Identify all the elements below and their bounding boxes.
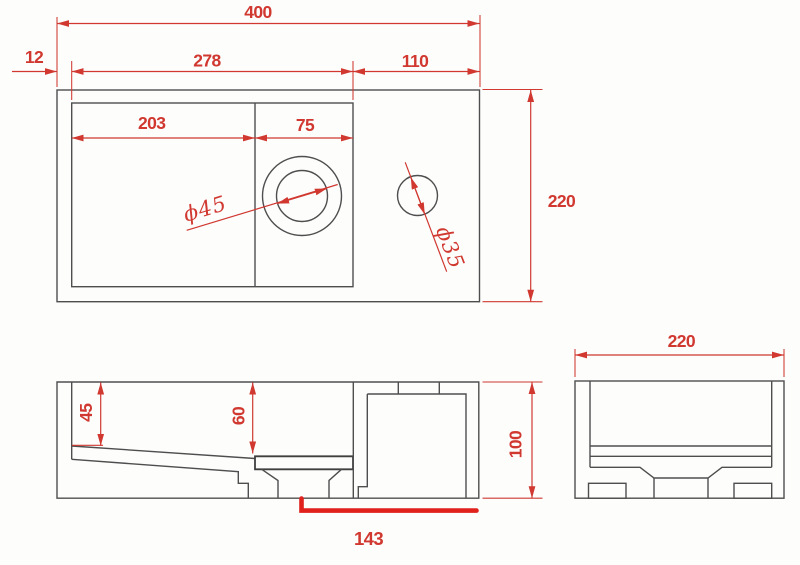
dim-label-drain-offset: 143 <box>354 528 383 549</box>
dim-label-basin-section: 203 <box>138 113 166 133</box>
top-view-dimensions: 400 12 278 110 203 75 220 ϕ45 ϕ35 <box>12 2 576 302</box>
dim-label-drain-section: 75 <box>296 115 315 135</box>
side-underside-drain-dip <box>590 467 772 478</box>
drain-pipe-right <box>329 469 342 498</box>
mounting-slot-right <box>734 483 772 498</box>
dim-label-deck-width: 110 <box>402 51 429 71</box>
mounting-slot-left <box>589 483 627 498</box>
side-drain-pipe <box>654 478 708 498</box>
drain-flange <box>255 456 353 469</box>
dim-label-drain-diameter: ϕ45 <box>181 191 230 227</box>
front-view-outer-outline <box>57 382 479 498</box>
top-view-outer-outline <box>57 90 480 302</box>
front-view-dimensions: 45 60 100 143 <box>72 382 543 549</box>
faucet-hole-section-lines <box>398 382 439 394</box>
dim-label-inner-width: 278 <box>193 51 221 71</box>
drain-offset-highlight-line <box>302 499 477 511</box>
sink-dimension-drawing: 400 12 278 110 203 75 220 ϕ45 ϕ35 45 60 … <box>0 0 800 565</box>
dim-label-left-rim: 12 <box>25 47 44 67</box>
faucet-diameter-arrows <box>411 177 425 214</box>
underside-slope-step <box>72 459 249 498</box>
technical-drawing-sheet: 400 12 278 110 203 75 220 ϕ45 ϕ35 45 60 … <box>0 0 800 565</box>
top-view <box>57 90 480 302</box>
recess-left-step <box>358 394 367 498</box>
dim-label-depth-left: 45 <box>76 403 96 422</box>
basin-bottom-slope <box>72 446 255 459</box>
dim-label-faucet-diameter: ϕ35 <box>431 223 469 273</box>
side-view <box>575 381 784 498</box>
side-inner-walls <box>590 381 772 467</box>
dim-label-depth-center: 60 <box>229 406 249 425</box>
recess-outline <box>367 394 466 498</box>
dim-label-total-width: 400 <box>244 2 272 22</box>
dim-label-height: 100 <box>506 430 526 458</box>
side-view-outer-outline <box>575 381 784 498</box>
drain-diameter-arrows <box>277 189 327 204</box>
side-view-dimensions: 220 <box>575 331 784 377</box>
front-view <box>57 382 479 498</box>
drain-pipe-left <box>262 469 278 498</box>
dim-label-side-depth: 220 <box>668 331 696 351</box>
dim-label-total-depth: 220 <box>548 191 576 211</box>
